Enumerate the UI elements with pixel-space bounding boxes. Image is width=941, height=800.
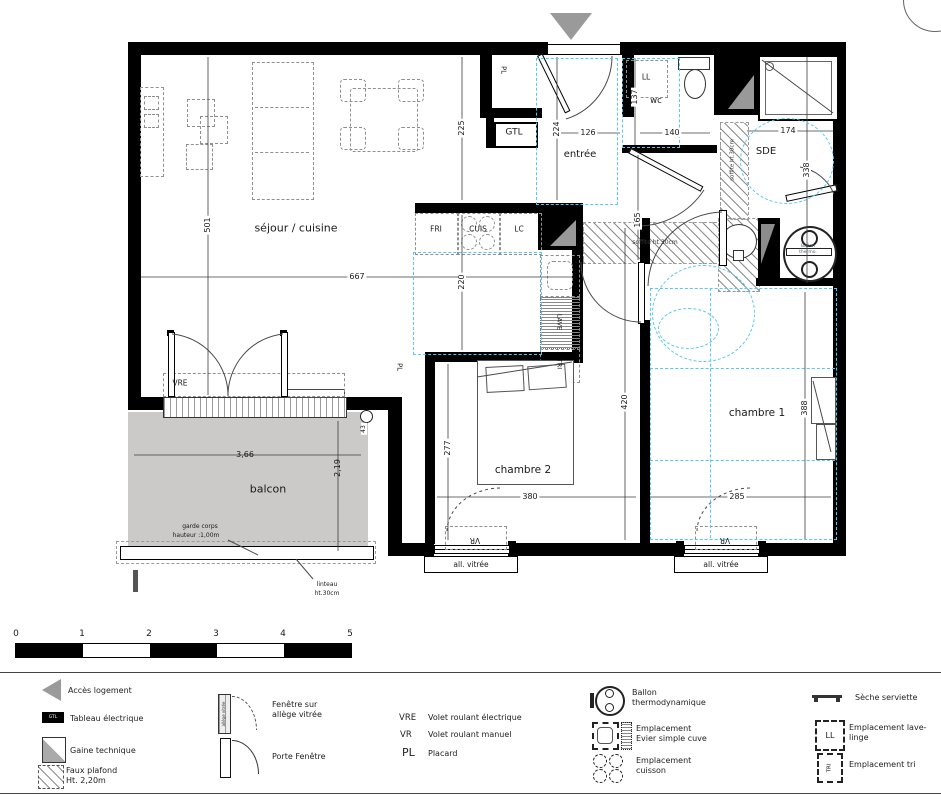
side-table <box>200 116 228 144</box>
legend-fenetre-line1: Fenêtre sur <box>272 700 322 710</box>
scale-tick: 4 <box>280 629 286 639</box>
pillow <box>485 365 524 393</box>
wall <box>128 42 548 55</box>
towel-rail-icon <box>812 692 842 702</box>
window-post <box>426 541 434 557</box>
appliance-slot <box>499 213 542 255</box>
accessibility-zone <box>536 58 618 205</box>
window-sill-icon: allège vitrée <box>218 694 262 732</box>
dimension-label: 225 <box>458 118 466 137</box>
legend-lave-linge-line2: linge <box>849 733 927 743</box>
room-label-sejour: séjour / cuisine <box>254 223 337 234</box>
water-heater-text: thermo. <box>799 251 817 256</box>
dimension-label: 667 <box>347 273 366 281</box>
dimension-label: 277 <box>444 438 452 457</box>
dimension-label: 3,66 <box>234 451 256 459</box>
side-table <box>186 144 213 170</box>
balcony-railing-outline <box>116 541 376 564</box>
lintel-note: linteau <box>317 582 338 588</box>
placard-label: PL <box>500 66 507 74</box>
ll-label: LL <box>642 73 650 81</box>
dimension-label: 165 <box>634 210 642 229</box>
legend-lave-linge: Emplacement lave- linge <box>849 723 927 743</box>
railing-post <box>133 570 138 592</box>
legend-vr-val: Volet roulant manuel <box>428 730 512 740</box>
tv-unit <box>140 87 164 177</box>
technical-shaft-icon <box>42 737 66 763</box>
guardrail-note: garde corps <box>182 524 218 530</box>
shower-head <box>765 62 774 71</box>
accessibility-line <box>710 288 711 538</box>
balcony-floor <box>128 412 368 546</box>
window-label: all. vitrée <box>424 556 518 573</box>
dimension-label: 43 <box>361 423 367 435</box>
electrical-panel-icon-text: GTL <box>49 715 58 720</box>
lc-label: LC <box>514 225 523 233</box>
placard-label: PL <box>396 363 403 371</box>
glazed-sill-label: all. vitrée <box>703 560 738 569</box>
dimension-label: 380 <box>520 493 539 501</box>
legend-tableau: Tableau électrique <box>70 714 143 724</box>
shutter-box-vre <box>163 373 345 397</box>
dimension-label: 137 <box>631 87 639 106</box>
dimension-label: 388 <box>801 398 809 417</box>
access-arrow-icon <box>42 679 61 701</box>
legend-cuisson-line1: Emplacement <box>636 756 691 766</box>
legend-tri: Emplacement tri <box>849 760 915 770</box>
french-door-leaf <box>168 332 175 397</box>
chair <box>398 127 424 150</box>
french-door-icon <box>220 738 264 776</box>
cooktop-slot-icon <box>593 754 623 782</box>
glazed-sill-label: all. vitrée <box>453 560 488 569</box>
wall <box>640 320 650 544</box>
legend-vr-key: VR <box>400 730 412 740</box>
shutter-label: VR <box>720 536 730 544</box>
accessibility-line <box>650 460 835 461</box>
legend-separator <box>0 793 941 794</box>
legend-gaine: Gaine technique <box>70 746 136 756</box>
chair <box>340 127 366 150</box>
entrance-threshold <box>548 44 620 55</box>
cooktop-ring <box>461 234 477 250</box>
window-post <box>676 541 684 557</box>
false-ceiling-icon <box>38 765 64 789</box>
shutter-label: VR <box>470 536 480 544</box>
wall <box>388 397 402 544</box>
sink-slot-icon <box>592 722 630 748</box>
waste-sorting-icon-text: TRI <box>827 764 833 773</box>
legend-fenetre: Fenêtre sur allège vitrée <box>272 700 322 720</box>
gtl-label: GTL <box>505 129 522 138</box>
legend-ballon: Ballon thermodynamique <box>632 688 706 708</box>
dimension-label: 420 <box>621 392 629 411</box>
dimension-label: 174 <box>778 127 797 135</box>
room-label-balcon: balcon <box>250 484 287 495</box>
legend-ballon-line2: thermodynamique <box>632 698 706 708</box>
scale-tick: 3 <box>213 629 219 639</box>
entrance-arrow-icon <box>550 13 592 40</box>
gaine-technique <box>538 208 580 250</box>
dimension-label: 285 <box>727 493 746 501</box>
washbasin-tap <box>733 250 744 261</box>
dimension-label: 224 <box>553 119 561 138</box>
dimension-label: 140 <box>662 129 681 137</box>
chair <box>340 79 366 102</box>
washing-machine-icon-text: LL <box>826 731 835 740</box>
cooktop-label: CUIS <box>469 225 487 233</box>
french-door-leaf <box>281 332 288 397</box>
soffit-note: soffite ht.30cm <box>730 139 736 181</box>
soffit-note: soffite ht.30cm <box>632 240 677 246</box>
gaine-technique <box>714 55 758 115</box>
room-label-wc: wc <box>650 97 662 106</box>
water-heater-valve <box>801 261 818 278</box>
legend-faux-plafond: Faux plafond Ht. 2,20m <box>66 766 117 786</box>
legend-faux-plafond-line2: Ht. 2,20m <box>66 776 117 786</box>
wall <box>762 543 846 556</box>
waste-sorting-icon: TRI <box>817 753 843 783</box>
washing-machine-icon: LL <box>815 720 845 751</box>
door-leaf <box>719 210 727 266</box>
balcony-window-sill <box>163 397 347 418</box>
lintel-note: ht.30cm <box>315 591 340 597</box>
water-heater-text: Ballon <box>801 245 815 250</box>
room-label-chambre2: chambre 2 <box>495 465 551 476</box>
legend-cuisson: Emplacement cuisson <box>636 756 691 776</box>
gaine-technique <box>758 218 780 280</box>
wall <box>425 352 435 544</box>
dimension-label: 220 <box>458 272 466 291</box>
legend-vre-key: VRE <box>399 713 416 723</box>
legend-ballon-line1: Ballon <box>632 688 706 698</box>
wall <box>620 42 846 55</box>
legend-pl-val: Placard <box>428 749 457 759</box>
scale-tick: 1 <box>79 629 85 639</box>
water-heater-icon <box>595 686 625 716</box>
wall <box>512 543 682 556</box>
legend-evier: Emplacement Evier simple cuve <box>636 724 707 744</box>
fridge-slot <box>415 213 459 255</box>
window-label: all. vitrée <box>674 556 768 573</box>
legend-porte-fenetre: Porte Fenêtre <box>272 752 326 762</box>
legend-seche: Sèche serviette <box>855 693 917 703</box>
legend-lave-linge-line1: Emplacement lave- <box>849 723 927 733</box>
legend-fenetre-line2: allège vitrée <box>272 710 322 720</box>
floor-plan: all. vitrée all. vitrée VR VR VRE séjour… <box>0 0 941 800</box>
wall <box>480 108 542 118</box>
wall <box>486 118 494 148</box>
shower-tray <box>758 55 839 121</box>
legend-acces: Accès logement <box>68 686 132 696</box>
door-leaf <box>638 262 645 324</box>
chair <box>398 79 424 102</box>
room-label-sde: SDE <box>756 147 776 157</box>
legend-pl-key: PL <box>402 746 415 759</box>
room-label-chambre1: chambre 1 <box>729 408 785 419</box>
room-label-entree: entrée <box>564 150 597 160</box>
tri-label: TRI <box>556 359 563 369</box>
toilet-bowl <box>684 69 706 99</box>
window-sill-icon-text: allège vitrée <box>222 702 226 727</box>
dimension-label: 126 <box>578 129 597 137</box>
scale-bar <box>15 643 352 658</box>
guardrail-note: hauteur :1,00m <box>173 533 220 539</box>
dimension-label: 2,19 <box>334 457 342 479</box>
accessibility-zone <box>413 252 542 355</box>
scale-tick: 5 <box>347 629 353 639</box>
legend-cuisson-line2: cuisson <box>636 766 691 776</box>
fridge-label: FRI <box>430 225 442 233</box>
balcony-column <box>360 410 373 423</box>
sink-bowl <box>547 261 573 290</box>
dimension-label: 501 <box>204 215 212 234</box>
legend-separator <box>0 672 941 673</box>
scale-tick: 0 <box>13 629 19 639</box>
legend-evier-line1: Emplacement <box>636 724 707 734</box>
legend-vre-val: Volet roulant électrique <box>428 713 522 723</box>
sofa <box>252 62 314 200</box>
corner-circle-mark <box>903 0 941 32</box>
legend-faux-plafond-line1: Faux plafond <box>66 766 117 776</box>
shutter-label: VRE <box>172 379 187 387</box>
wall <box>480 55 492 112</box>
scale-tick: 2 <box>146 629 152 639</box>
cooktop-ring <box>479 234 495 250</box>
electrical-panel-icon: GTL <box>42 712 64 723</box>
dimension-label: 338 <box>803 160 811 179</box>
door-leaf <box>628 148 703 192</box>
sink-drainer-label: LAVE <box>556 314 563 330</box>
accessibility-line <box>650 368 835 369</box>
legend-evier-line2: Evier simple cuve <box>636 734 707 744</box>
